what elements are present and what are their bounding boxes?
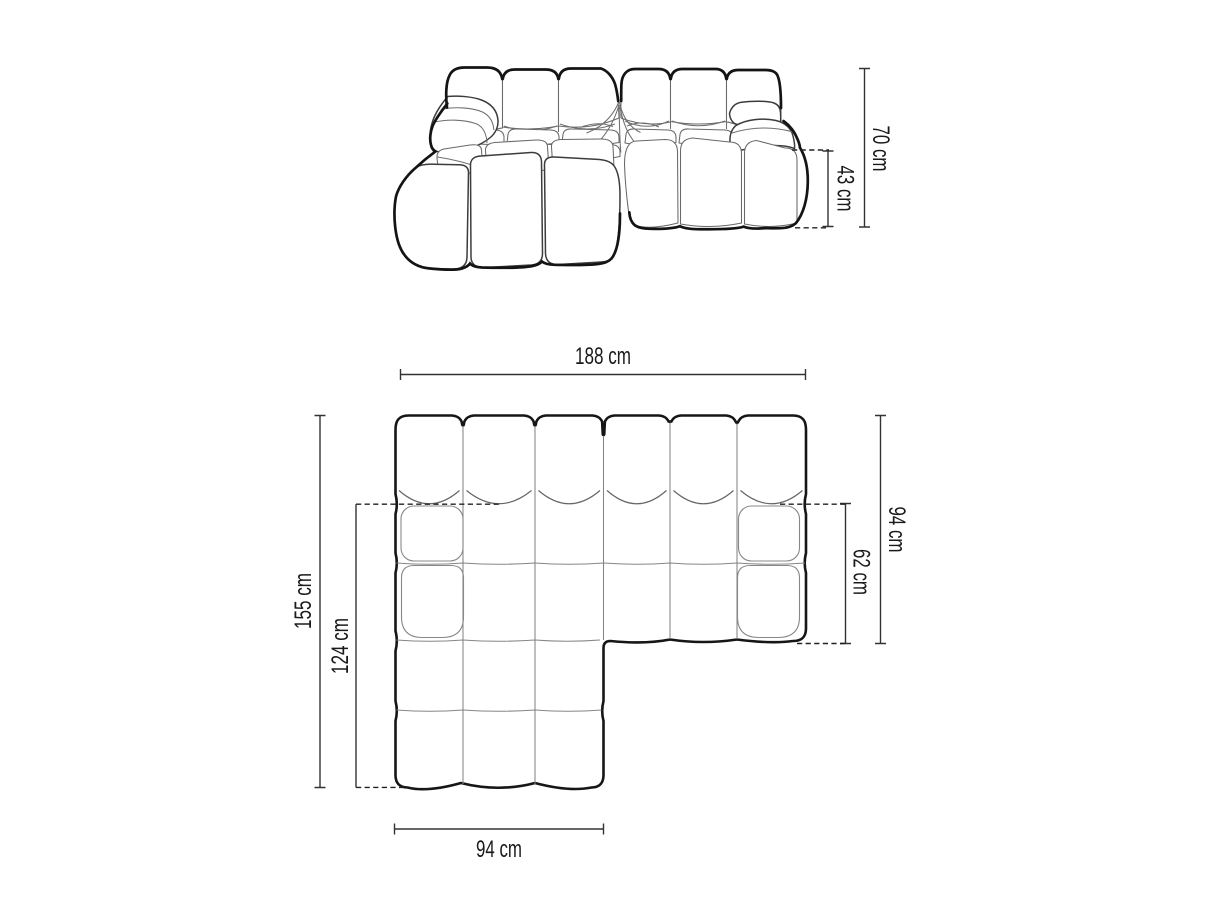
svg-text:188 cm: 188 cm xyxy=(575,343,631,370)
svg-text:43 cm: 43 cm xyxy=(831,166,858,212)
svg-text:155 cm: 155 cm xyxy=(290,573,317,629)
svg-text:94 cm: 94 cm xyxy=(883,507,910,553)
svg-text:62 cm: 62 cm xyxy=(847,549,874,595)
svg-text:70 cm: 70 cm xyxy=(867,126,894,172)
svg-text:94 cm: 94 cm xyxy=(476,836,522,863)
svg-text:124 cm: 124 cm xyxy=(327,618,354,674)
